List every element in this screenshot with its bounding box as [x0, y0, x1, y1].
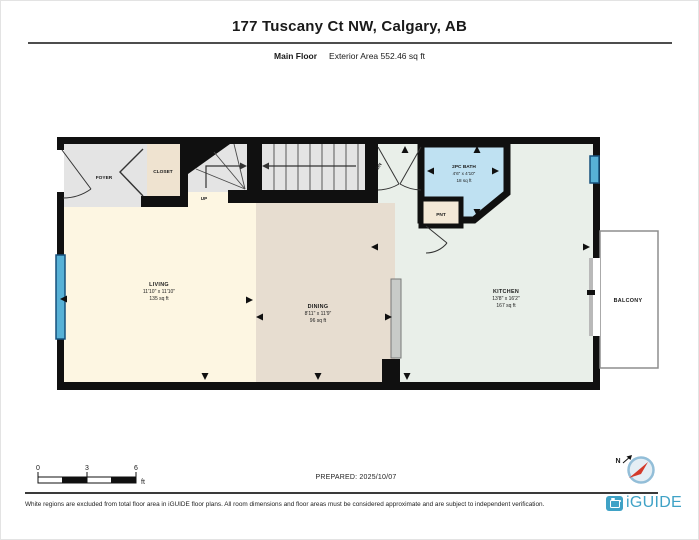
- dining-area: [256, 203, 395, 382]
- closet-label: CLOSET: [153, 169, 173, 175]
- kitchen-dims: 13'8" x 16'2": [492, 296, 520, 302]
- scale-tick-6: 6: [134, 465, 138, 472]
- sliding-door-handle: [587, 290, 595, 295]
- disclaimer-text: White regions are excluded from total fl…: [25, 501, 590, 508]
- dining-kitchen-wall-stub: [382, 359, 400, 382]
- stair-bottom-wall: [228, 190, 378, 203]
- bath-label: 2PC BATH: [452, 164, 476, 170]
- floorplan-page: 177 Tuscany Ct NW, Calgary, AB Main Floo…: [0, 0, 699, 540]
- dining-label: DINING: [308, 304, 329, 310]
- prepared-date: PREPARED: 2025/10/07: [256, 474, 456, 481]
- pantry-label: PNT: [436, 212, 446, 218]
- north-label: N: [615, 458, 620, 465]
- foyer-label: FOYER: [96, 175, 113, 181]
- footer-divider: [25, 492, 658, 494]
- straight-stair-area: [262, 144, 365, 190]
- balcony-door-opening: [593, 258, 600, 336]
- bath-dims: 4'6" x 4'10": [453, 171, 476, 176]
- dining-area-label: 96 sq ft: [310, 318, 327, 324]
- balcony-label: BALCONY: [614, 298, 643, 304]
- closet-bottom-wall: [141, 196, 184, 207]
- living-label: LIVING: [149, 282, 169, 288]
- compass: N: [615, 455, 653, 483]
- scale-tick-3: 3: [85, 465, 89, 472]
- scale-bar: 0 3 6 ft: [36, 465, 145, 486]
- kitchen-counter: [391, 279, 401, 358]
- bath-area-label: 18 sq ft: [456, 178, 472, 183]
- scale-unit: ft: [141, 479, 145, 486]
- sliding-door: [589, 258, 593, 336]
- living-window: [56, 255, 65, 339]
- stair-up-label: UP: [201, 196, 207, 201]
- scale-tick-0: 0: [36, 465, 40, 472]
- iguide-wordmark: iGUIDE: [626, 494, 682, 512]
- entry-door-opening: [57, 150, 64, 192]
- kitchen-label: KITCHEN: [493, 289, 519, 295]
- floorplan-canvas: FOYER CLOSET LIVING 11'10" x 11'10" 135 …: [0, 0, 699, 540]
- iguide-camera-icon: [606, 496, 623, 511]
- iguide-logo: iGUIDE: [606, 494, 682, 512]
- kitchen-area-label: 167 sq ft: [496, 303, 516, 309]
- stair-divider-wall: [247, 144, 262, 192]
- living-dims: 11'10" x 11'10": [143, 289, 175, 295]
- living-area-label: 135 sq ft: [149, 296, 169, 302]
- dining-dims: 8'11" x 11'9": [305, 311, 332, 317]
- kitchen-window: [590, 156, 599, 183]
